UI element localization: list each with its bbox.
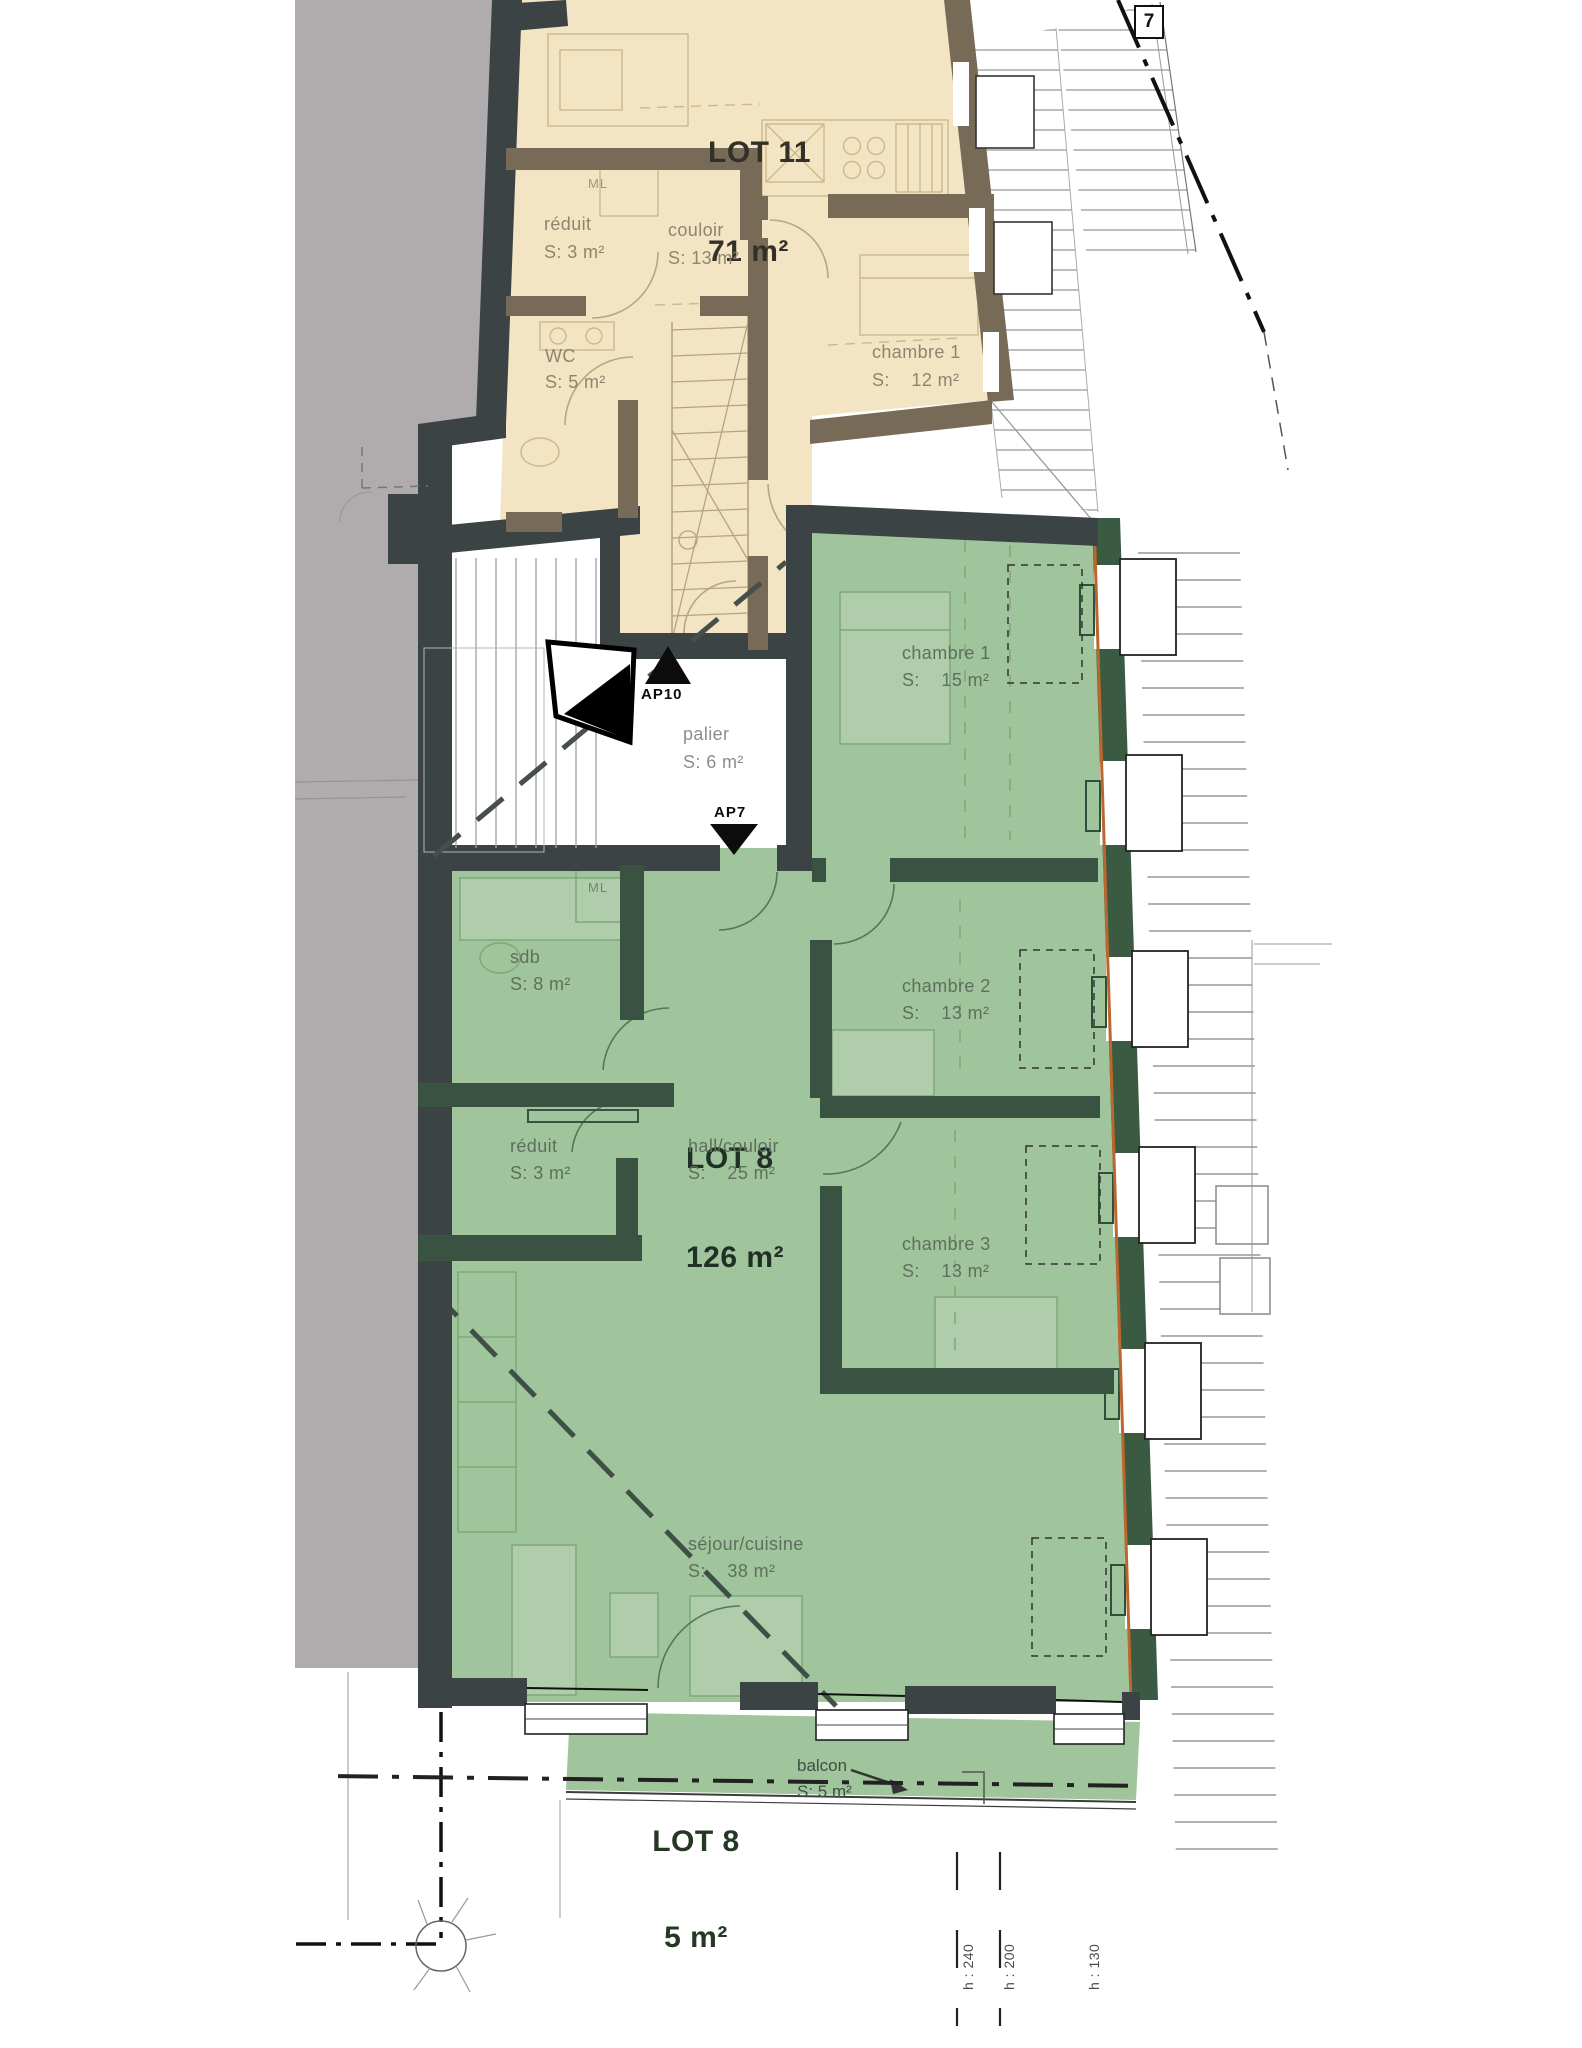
lot8-title: LOT 8 126 m² bbox=[686, 1076, 784, 1307]
height-label-240: h : 240 bbox=[960, 1944, 976, 1990]
room-area-lot11-couloir: S: 13 m² bbox=[668, 248, 739, 269]
room-area-lot8-sejour: S: 38 m² bbox=[688, 1561, 775, 1582]
lot8-balcony-title: LOT 8 5 m² bbox=[634, 1762, 758, 1986]
height-label-200: h : 200 bbox=[1001, 1944, 1017, 1990]
room-label-lot11-chambre1: chambre 1 bbox=[872, 342, 961, 363]
lot8-balcony-title-name: LOT 8 bbox=[634, 1826, 758, 1858]
room-label-lot8-chambre2: chambre 2 bbox=[902, 976, 991, 997]
ap10-label: AP10 bbox=[641, 686, 683, 703]
room-label-lot8-hall: hall/couloir bbox=[688, 1136, 779, 1157]
floor-plan-sheet: LOT 11 71 m² réduit S: 3 m² couloir S: 1… bbox=[0, 0, 1582, 2048]
lot8-title-area: 126 m² bbox=[686, 1241, 784, 1274]
room-area-balcon: S: 5 m² bbox=[797, 1782, 852, 1802]
ap7-label: AP7 bbox=[714, 804, 746, 821]
floor-plan-drawing bbox=[0, 0, 1582, 2048]
room-area-palier: S: 6 m² bbox=[683, 752, 744, 773]
room-area-lot8-reduit: S: 3 m² bbox=[510, 1163, 571, 1184]
room-label-lot11-couloir: couloir bbox=[668, 220, 724, 241]
lot8-balcony-title-area: 5 m² bbox=[634, 1922, 758, 1954]
room-area-lot8-sdb: S: 8 m² bbox=[510, 974, 571, 995]
room-area-lot8-chambre2: S: 13 m² bbox=[902, 1003, 989, 1024]
room-area-lot11-chambre1: S: 12 m² bbox=[872, 370, 959, 391]
room-label-palier: palier bbox=[683, 724, 729, 745]
lot11-title-name: LOT 11 bbox=[708, 136, 811, 169]
room-label-balcon: balcon bbox=[797, 1756, 847, 1776]
room-area-lot11-reduit: S: 3 m² bbox=[544, 242, 605, 263]
boundary-bottomleft bbox=[296, 1712, 496, 1992]
section-dashed-lines bbox=[957, 1852, 1000, 2026]
room-label-lot8-sdb: sdb bbox=[510, 947, 540, 968]
room-area-lot8-chambre1: S: 15 m² bbox=[902, 670, 989, 691]
room-label-lot8-sejour: séjour/cuisine bbox=[688, 1534, 804, 1555]
room-area-lot11-wc: S: 5 m² bbox=[545, 372, 606, 393]
ml-marker-lot8: ML bbox=[588, 880, 608, 895]
room-area-lot8-chambre3: S: 13 m² bbox=[902, 1261, 989, 1282]
ml-marker-lot11: ML bbox=[588, 176, 608, 191]
height-label-130: h : 130 bbox=[1086, 1944, 1102, 1990]
room-label-lot8-chambre3: chambre 3 bbox=[902, 1234, 991, 1255]
room-label-lot11-reduit: réduit bbox=[544, 214, 591, 235]
facade-marker-7: 7 bbox=[1134, 5, 1164, 39]
room-label-lot11-wc: WC bbox=[545, 346, 576, 367]
room-label-lot8-reduit: réduit bbox=[510, 1136, 557, 1157]
room-area-lot8-hall: S: 25 m² bbox=[688, 1163, 775, 1184]
room-label-lot8-chambre1: chambre 1 bbox=[902, 643, 991, 664]
